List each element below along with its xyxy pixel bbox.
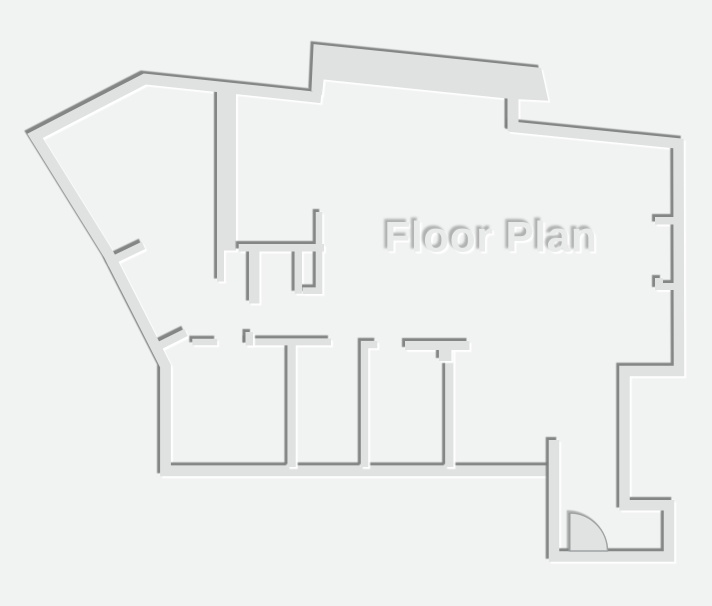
svg-text:Floor Plan: Floor Plan: [385, 215, 598, 262]
